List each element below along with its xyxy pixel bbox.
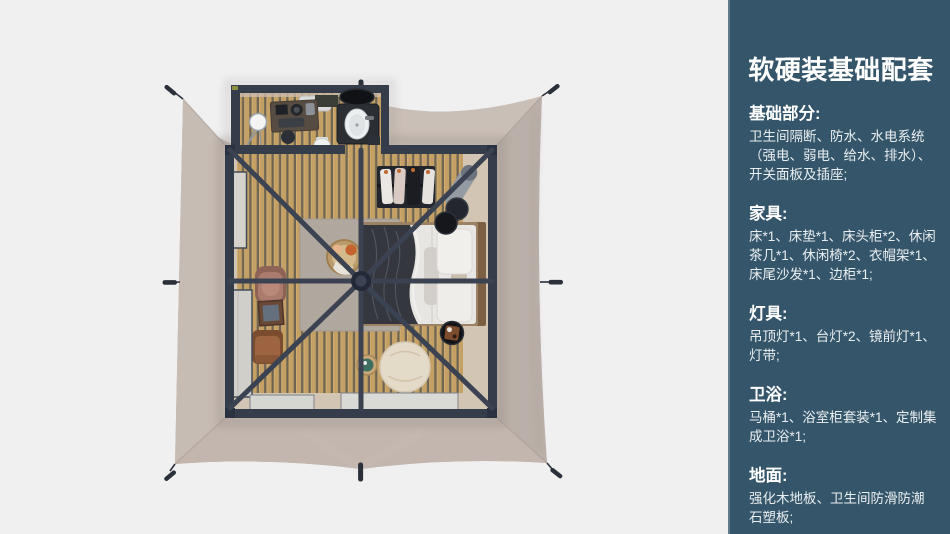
side-cabinet xyxy=(258,300,284,326)
leisure-chair-mauve xyxy=(255,266,286,304)
spec-heading: 卫浴: xyxy=(749,385,937,405)
tent-render-area xyxy=(0,0,728,534)
spec-heading: 家具: xyxy=(749,204,937,224)
hanging-garment xyxy=(393,168,406,205)
black-stool xyxy=(435,212,457,234)
stake-mid-right xyxy=(549,280,563,284)
page: 软硬装基础配套 基础部分: 卫生间隔断、防水、水电系统（强电、弱电、给水、排水）… xyxy=(0,0,950,534)
bathroom-shelf xyxy=(315,95,338,107)
spec-body: 马桶*1、浴室柜套装*1、定制集成卫浴*1; xyxy=(749,408,937,446)
bathroom-wall-left xyxy=(231,85,240,149)
spec-section-lighting: 灯具: 吊顶灯*1、台灯*2、镜前灯*1、灯带; xyxy=(749,304,937,365)
pillow xyxy=(437,229,472,274)
round-lounger xyxy=(327,240,361,275)
info-panel: 软硬装基础配套 基础部分: 卫生间隔断、防水、水电系统（强电、弱电、给水、排水）… xyxy=(728,0,950,534)
round-mirror xyxy=(340,89,374,105)
hanging-garment xyxy=(407,167,420,205)
main-room xyxy=(225,145,497,418)
bathroom-annex xyxy=(231,85,389,152)
spec-body: 床*1、床垫*1、床头柜*2、休闲茶几*1、休闲椅*2、衣帽架*1、床尾沙发*1… xyxy=(749,227,937,284)
clothes-rack xyxy=(377,166,435,208)
bedside-table xyxy=(441,322,464,345)
spec-heading: 地面: xyxy=(749,466,937,486)
panel-title: 软硬装基础配套 xyxy=(745,50,937,87)
pillow xyxy=(437,279,472,322)
spec-section-bathroom: 卫浴: 马桶*1、浴室柜套装*1、定制集成卫浴*1; xyxy=(749,385,937,446)
spec-heading: 基础部分: xyxy=(749,104,937,124)
pole-bottom-center xyxy=(359,463,363,481)
tent-top-view xyxy=(0,0,728,534)
spec-body: 强化木地板、卫生间防滑防潮石塑板; xyxy=(749,489,937,527)
spec-body: 吊顶灯*1、台灯*2、镜前灯*1、灯带; xyxy=(749,327,937,365)
cushion xyxy=(346,245,357,256)
bathroom-wall-right xyxy=(381,85,389,149)
spec-section-furniture: 家具: 床*1、床垫*1、床头柜*2、休闲茶几*1、休闲椅*2、衣帽架*1、床尾… xyxy=(749,204,937,284)
stake-mid-left xyxy=(163,281,177,285)
spec-section-basics: 基础部分: 卫生间隔断、防水、水电系统（强电、弱电、给水、排水）、开关面板及插座… xyxy=(749,104,937,184)
bed xyxy=(360,222,486,326)
spec-heading: 灯具: xyxy=(749,304,937,324)
desk-stool xyxy=(281,130,295,144)
towel-accent xyxy=(232,86,238,90)
sink-vanity xyxy=(337,89,379,144)
spec-body: 卫生间隔断、防水、水电系统（强电、弱电、给水、排水）、开关面板及插座; xyxy=(749,127,937,184)
spec-section-floor: 地面: 强化木地板、卫生间防滑防潮石塑板; xyxy=(749,466,937,527)
bottom-glass-panel xyxy=(250,395,314,411)
bathroom-desk xyxy=(270,100,319,132)
beanbag xyxy=(380,342,430,392)
